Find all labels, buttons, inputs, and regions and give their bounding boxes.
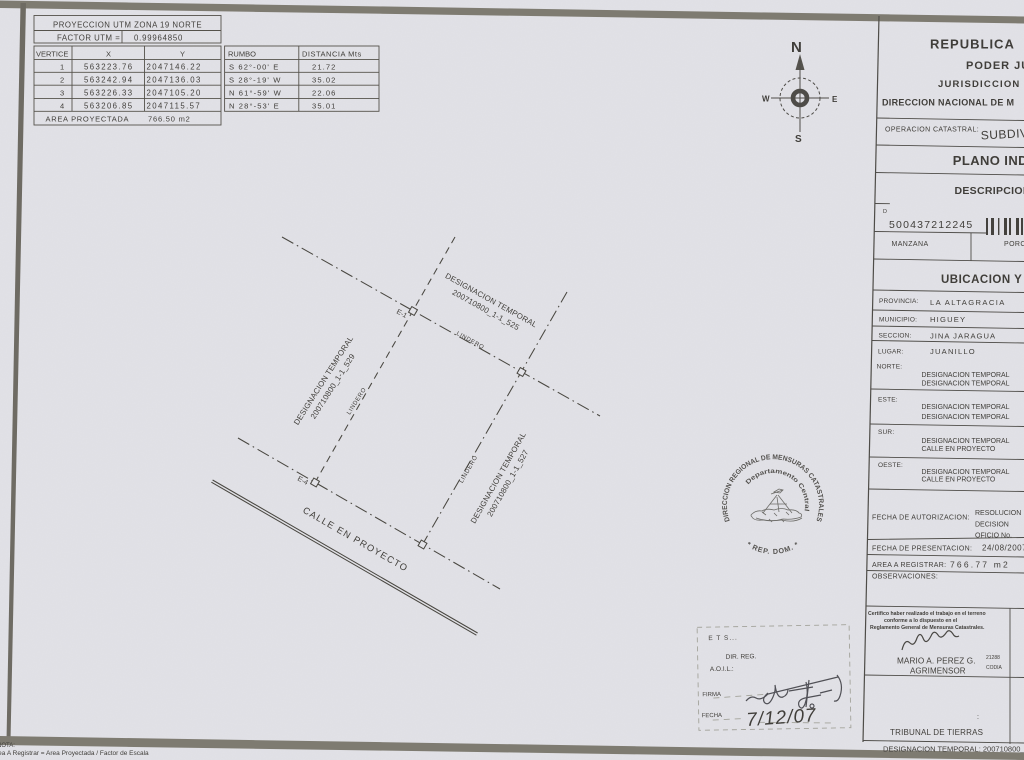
svg-text:AGRIMENSOR: AGRIMENSOR: [910, 667, 966, 676]
svg-text:0.99964850: 0.99964850: [134, 34, 183, 43]
svg-text:UBICACION Y COLINDANCIAS: UBICACION Y COLINDANCIAS: [941, 274, 1024, 286]
svg-text:3: 3: [60, 88, 64, 97]
svg-text:S 28°-19' W: S 28°-19' W: [229, 75, 281, 84]
svg-text:LUGAR:: LUGAR:: [878, 349, 903, 356]
svg-text:DIRECCION NACIONAL DE M: DIRECCION NACIONAL DE M: [882, 98, 1014, 108]
svg-text:N: N: [791, 39, 802, 56]
svg-text:DESIGNACION TEMPORAL: DESIGNACION TEMPORAL: [922, 469, 1010, 476]
svg-text:CALLE EN PROYECTO: CALLE EN PROYECTO: [922, 477, 996, 484]
svg-text:N 28°-53' E: N 28°-53' E: [229, 101, 280, 110]
svg-text:AREA PROYECTADA: AREA PROYECTADA: [46, 115, 130, 124]
svg-text:563242.94: 563242.94: [84, 75, 133, 84]
svg-text:NOTA:: NOTA:: [0, 743, 15, 749]
svg-text:RUMBO: RUMBO: [228, 50, 256, 59]
svg-text:766.50 m2: 766.50 m2: [148, 115, 191, 124]
svg-text:PODER JUDICIAL: PODER JUDICIAL: [966, 60, 1024, 72]
svg-text:DESIGNACION TEMPORAL: DESIGNACION TEMPORAL: [922, 438, 1010, 445]
svg-text:JINA JARAGUA: JINA JARAGUA: [930, 332, 996, 341]
svg-text:E T S...: E T S...: [708, 635, 738, 643]
svg-text:N 61°-59' W: N 61°-59' W: [229, 88, 282, 97]
svg-text:PORCION: PORCION: [1004, 241, 1024, 248]
svg-text:DESIGNACION TEMPORAL: DESIGNACION TEMPORAL: [922, 372, 1010, 379]
svg-text:2047136.03: 2047136.03: [147, 75, 202, 84]
svg-text:Y: Y: [180, 50, 185, 59]
svg-text:563226.33: 563226.33: [84, 88, 133, 97]
svg-text:rea A Registrar = Area Proyect: rea A Registrar = Area Proyectada / Fact…: [0, 750, 149, 757]
svg-text:PROYECCION UTM ZONA 19 NORTE: PROYECCION UTM ZONA 19 NORTE: [53, 21, 202, 30]
svg-text:PLANO IND: PLANO IND: [953, 153, 1024, 168]
svg-text:21288: 21288: [986, 655, 1000, 661]
svg-text:X: X: [106, 50, 111, 59]
svg-text:2047146.22: 2047146.22: [147, 63, 202, 72]
svg-text:2: 2: [60, 75, 64, 84]
svg-text:CALLE EN PROYECTO: CALLE EN PROYECTO: [922, 446, 996, 453]
svg-text:VERTICE: VERTICE: [36, 50, 68, 59]
svg-text:OFICIO No.: OFICIO No.: [975, 533, 1012, 540]
svg-text:Certifico haber realizado el t: Certifico haber realizado el trabajo en …: [868, 611, 986, 617]
svg-text:CODIA: CODIA: [986, 665, 1003, 671]
svg-text:MUNICIPIO:: MUNICIPIO:: [879, 317, 917, 324]
svg-text:DESCRIPCION: DESCRIPCION: [955, 185, 1024, 197]
svg-text:500437212245: 500437212245: [889, 219, 973, 231]
svg-text:Reglamento General de Mensuras: Reglamento General de Mensuras Catastral…: [870, 625, 985, 631]
svg-text:21.72: 21.72: [312, 63, 337, 72]
svg-text:S 62°-00' E: S 62°-00' E: [229, 63, 279, 72]
svg-text:D: D: [883, 209, 887, 215]
svg-text:DISTANCIA Mts: DISTANCIA Mts: [302, 50, 362, 59]
svg-text:HIGUEY: HIGUEY: [930, 315, 966, 324]
svg-text:SUR:: SUR:: [878, 429, 894, 436]
svg-text:MARIO A. PEREZ G.: MARIO A. PEREZ G.: [897, 657, 976, 666]
svg-text:766.77 m2: 766.77 m2: [950, 560, 1010, 570]
svg-text:PROVINCIA:: PROVINCIA:: [879, 298, 919, 305]
svg-text:S: S: [795, 134, 802, 145]
svg-text:JUANILLO: JUANILLO: [930, 347, 976, 356]
svg-text:35.02: 35.02: [312, 75, 337, 84]
svg-text:TRIBUNAL DE TIERRAS: TRIBUNAL DE TIERRAS: [890, 728, 983, 737]
svg-text:DIR. REG.: DIR. REG.: [726, 653, 757, 661]
svg-text:NORTE:: NORTE:: [877, 364, 903, 371]
svg-text:2047105.20: 2047105.20: [147, 88, 202, 97]
svg-text:FECHA DE AUTORIZACION:: FECHA DE AUTORIZACION:: [872, 515, 970, 522]
svg-text:563223.76: 563223.76: [84, 63, 133, 72]
svg-text:conforme a lo dispuesto en el: conforme a lo dispuesto en el: [884, 618, 958, 624]
svg-text:35.01: 35.01: [312, 101, 337, 110]
svg-text:563206.85: 563206.85: [84, 101, 133, 110]
svg-text:JURISDICCION: JURISDICCION: [938, 79, 1021, 90]
svg-text:24/08/2007: 24/08/2007: [982, 544, 1024, 553]
svg-text:FACTOR UTM =: FACTOR UTM =: [57, 34, 120, 43]
svg-text:1: 1: [60, 63, 64, 72]
svg-text:DESIGNACION TEMPORAL: DESIGNACION TEMPORAL: [922, 414, 1010, 421]
svg-text:MANZANA: MANZANA: [892, 241, 929, 248]
svg-text:A.O.I.L.:: A.O.I.L.:: [710, 666, 734, 673]
svg-text::: :: [977, 714, 979, 721]
svg-text:SECCION:: SECCION:: [879, 333, 912, 340]
svg-text:DESIGNACION TEMPORAL: DESIGNACION TEMPORAL: [922, 381, 1010, 388]
svg-text:ESTE:: ESTE:: [878, 397, 898, 404]
svg-text:E: E: [832, 95, 838, 104]
svg-text:W: W: [762, 95, 770, 104]
svg-text:2047115.57: 2047115.57: [147, 101, 202, 110]
svg-text:4: 4: [60, 101, 64, 110]
svg-text:FECHA DE PRESENTACION:: FECHA DE PRESENTACION:: [872, 546, 972, 553]
svg-text:DESIGNACION TEMPORAL: DESIGNACION TEMPORAL: [922, 404, 1010, 411]
svg-text:22.06: 22.06: [312, 88, 337, 97]
svg-text:AREA A REGISTRAR:: AREA A REGISTRAR:: [872, 562, 946, 569]
svg-text:DECISION: DECISION: [975, 522, 1009, 529]
svg-text:DESIGNACION TEMPORAL: 20071080: DESIGNACION TEMPORAL: 200710800_1-1: [883, 745, 1024, 754]
svg-text:LA ALTAGRACIA: LA ALTAGRACIA: [930, 298, 1006, 307]
svg-text:REPUBLICA: REPUBLICA: [930, 37, 1015, 52]
svg-text:OESTE:: OESTE:: [878, 462, 903, 469]
svg-text:FECHA: FECHA: [702, 713, 722, 719]
svg-text:OBSERVACIONES:: OBSERVACIONES:: [872, 574, 938, 581]
svg-text:RESOLUCION: RESOLUCION: [975, 510, 1021, 517]
svg-text:OPERACION CATASTRAL:: OPERACION CATASTRAL:: [885, 127, 979, 134]
